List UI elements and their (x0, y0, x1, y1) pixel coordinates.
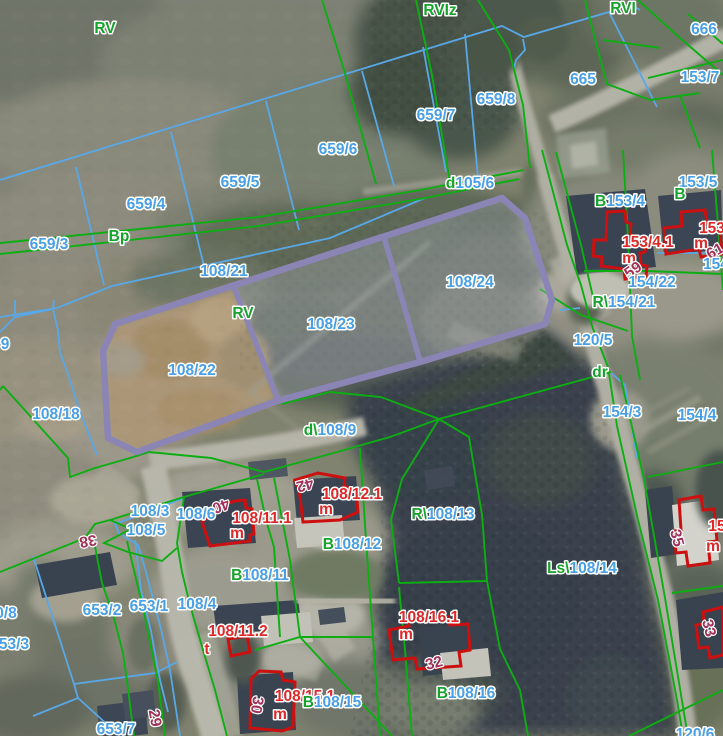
svg-text:108/23: 108/23 (307, 316, 355, 333)
svg-text:m: m (273, 706, 287, 723)
svg-text:659/7: 659/7 (417, 107, 456, 124)
svg-text:108/6: 108/6 (177, 506, 216, 523)
svg-text:m: m (706, 538, 720, 555)
svg-text:d105/6: d105/6 (446, 175, 495, 192)
svg-text:108/21: 108/21 (200, 263, 248, 280)
svg-text:154/3: 154/3 (603, 404, 642, 421)
svg-text:653/7: 653/7 (97, 721, 136, 736)
svg-text:RV: RV (94, 20, 116, 37)
svg-text:d\108/9: d\108/9 (304, 422, 357, 439)
svg-text:666: 666 (691, 21, 717, 38)
svg-text:RVIz: RVIz (423, 2, 457, 19)
svg-text:RVI: RVI (610, 0, 636, 17)
svg-text:108/24: 108/24 (446, 274, 494, 291)
svg-text:108/5: 108/5 (127, 522, 166, 539)
svg-text:B: B (674, 186, 685, 203)
svg-text:108/18: 108/18 (32, 406, 80, 423)
svg-text:30: 30 (247, 695, 267, 715)
svg-text:665: 665 (570, 71, 596, 88)
svg-text:Ls\108/14: Ls\108/14 (547, 560, 617, 577)
svg-text:38: 38 (78, 531, 98, 551)
svg-text:9: 9 (1, 336, 10, 353)
svg-text:108/22: 108/22 (168, 362, 215, 379)
svg-text:B153/4: B153/4 (595, 193, 645, 210)
svg-text:653/2: 653/2 (83, 602, 122, 619)
svg-text:m: m (399, 626, 413, 643)
svg-text:m: m (230, 525, 244, 542)
svg-text:R\108/13: R\108/13 (412, 506, 475, 523)
svg-text:29: 29 (145, 708, 165, 728)
svg-text:653/1: 653/1 (130, 598, 169, 615)
svg-text:B108/15: B108/15 (303, 694, 362, 711)
svg-text:659/3: 659/3 (30, 236, 69, 253)
svg-text:154: 154 (703, 256, 723, 273)
svg-text:659/6: 659/6 (319, 141, 358, 158)
svg-text:53/3: 53/3 (0, 636, 29, 653)
svg-text:dr: dr (592, 364, 608, 381)
svg-text:120/6: 120/6 (676, 726, 715, 736)
svg-text:m: m (319, 501, 333, 518)
svg-text:153/7: 153/7 (681, 69, 720, 86)
svg-text:B108/16: B108/16 (437, 685, 496, 702)
svg-text:R\154/21: R\154/21 (593, 294, 656, 311)
svg-text:120/5: 120/5 (574, 332, 613, 349)
svg-text:108/11.2: 108/11.2 (208, 623, 267, 640)
svg-text:108/4: 108/4 (178, 596, 217, 613)
svg-text:154/22: 154/22 (628, 274, 675, 291)
svg-text:B108/12: B108/12 (323, 536, 382, 553)
svg-text:0/8: 0/8 (0, 605, 17, 622)
svg-text:RV: RV (232, 305, 254, 322)
svg-text:B108/11: B108/11 (231, 567, 289, 584)
svg-text:Bp: Bp (109, 228, 130, 245)
svg-text:108/16.1: 108/16.1 (399, 609, 460, 626)
svg-text:153/4.1: 153/4.1 (622, 234, 674, 251)
svg-text:659/4: 659/4 (127, 196, 166, 213)
svg-text:t: t (204, 641, 209, 658)
svg-text:154/4: 154/4 (678, 407, 717, 424)
svg-text:15: 15 (708, 518, 723, 535)
svg-text:659/5: 659/5 (221, 174, 260, 191)
svg-text:108/3: 108/3 (131, 503, 170, 520)
svg-text:659/8: 659/8 (477, 91, 516, 108)
